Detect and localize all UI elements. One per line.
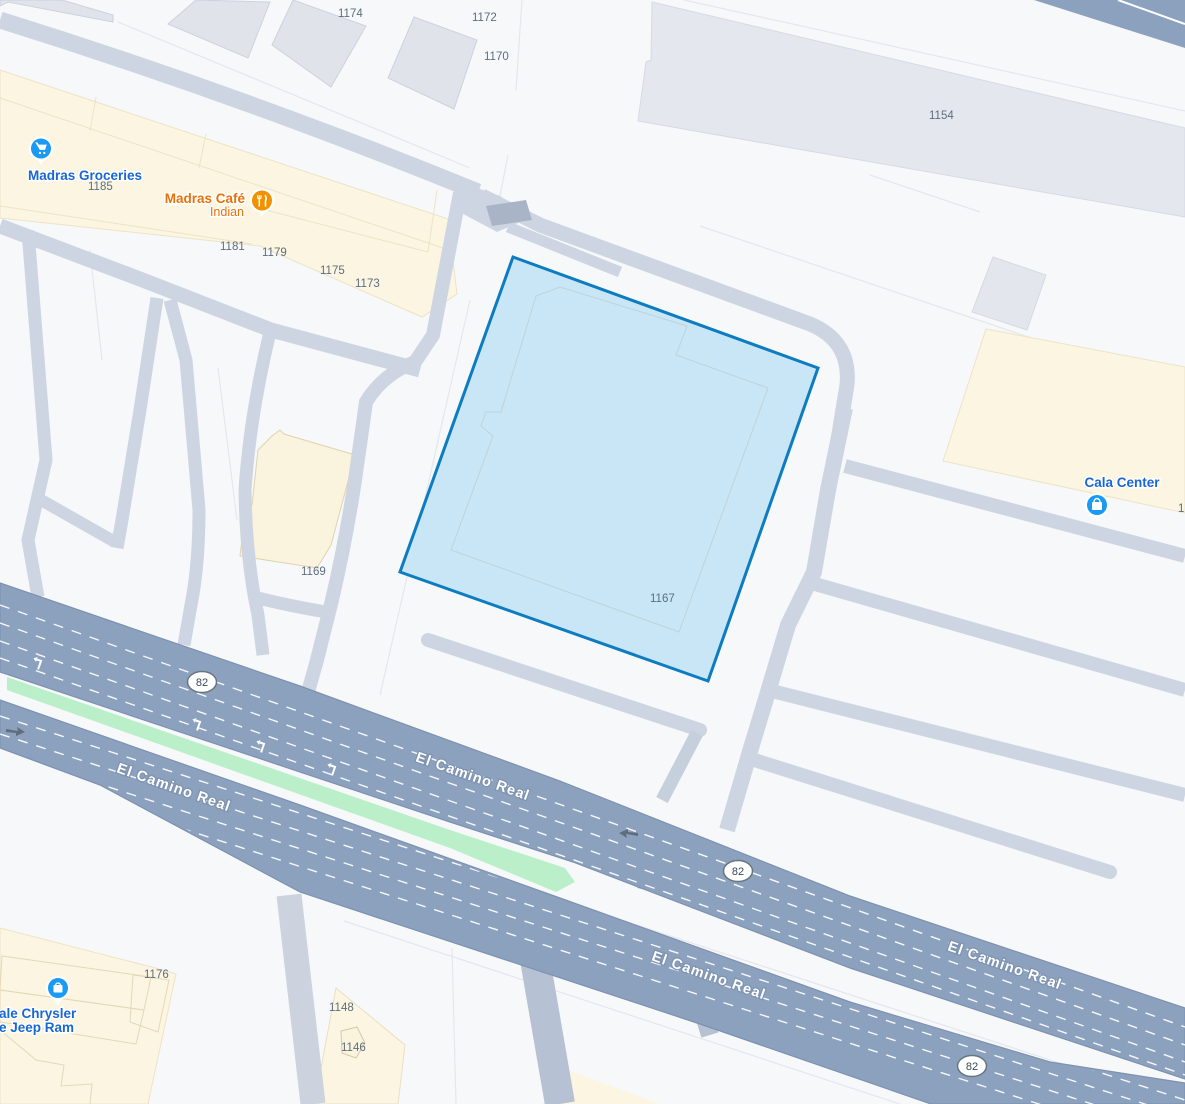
svg-text:1175: 1175 — [320, 265, 345, 277]
svg-text:1173: 1173 — [355, 278, 380, 290]
svg-text:1179: 1179 — [262, 247, 287, 259]
svg-text:Cala Center: Cala Center — [1084, 475, 1160, 490]
svg-text:1146: 1146 — [341, 1042, 366, 1054]
svg-text:1: 1 — [1178, 503, 1184, 515]
svg-text:Madras Café: Madras Café — [165, 191, 246, 206]
svg-text:82: 82 — [196, 677, 208, 689]
svg-text:1174: 1174 — [338, 8, 363, 20]
svg-text:Indian: Indian — [210, 205, 244, 219]
svg-text:82: 82 — [732, 866, 744, 878]
svg-text:1169: 1169 — [301, 566, 326, 578]
svg-text:1172: 1172 — [472, 12, 497, 24]
svg-text:e Jeep Ram: e Jeep Ram — [0, 1020, 74, 1035]
svg-text:1154: 1154 — [929, 110, 954, 122]
svg-text:1181: 1181 — [220, 241, 245, 253]
svg-text:Madras Groceries: Madras Groceries — [28, 168, 142, 183]
svg-text:1170: 1170 — [484, 51, 509, 63]
svg-text:82: 82 — [966, 1061, 978, 1073]
svg-text:1148: 1148 — [329, 1002, 354, 1014]
svg-text:1176: 1176 — [144, 969, 169, 981]
svg-text:1167: 1167 — [650, 593, 675, 605]
svg-text:ale Chrysler: ale Chrysler — [0, 1006, 77, 1021]
